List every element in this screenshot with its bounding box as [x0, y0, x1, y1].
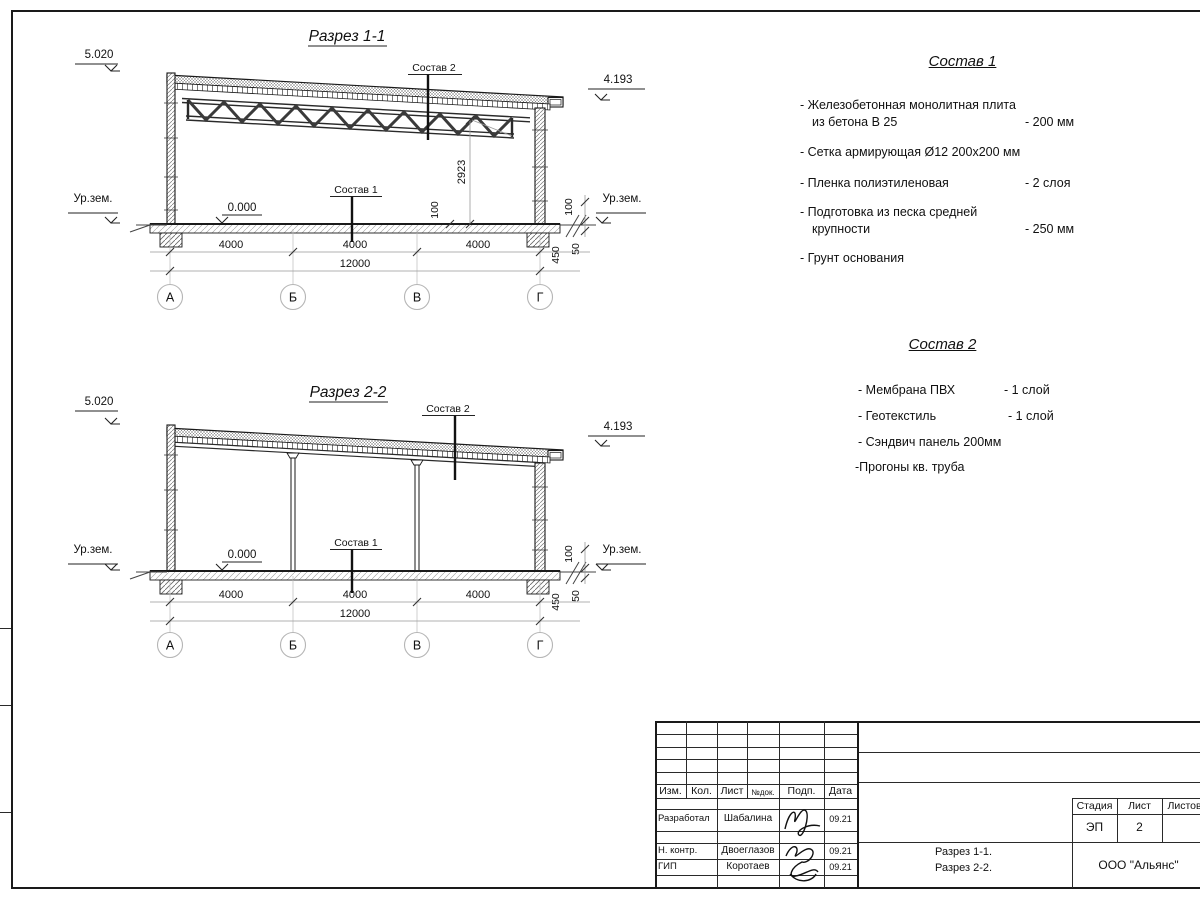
svg-text:100: 100 — [563, 198, 575, 216]
svg-text:Ур.зем.: Ур.зем. — [602, 544, 641, 556]
svg-text:4.193: 4.193 — [604, 421, 633, 433]
item-value: - 200 мм — [1025, 115, 1074, 129]
svg-text:2923: 2923 — [456, 160, 468, 184]
svg-text:Состав 1: Состав 1 — [334, 537, 378, 549]
sheet-number: 2 — [1117, 820, 1162, 834]
svg-text:Б: Б — [289, 291, 297, 305]
dim-row-total: 12000 — [150, 258, 580, 275]
elevation-mark-right: 4.193 — [588, 74, 645, 100]
list-item: - Подготовка из песка средней — [800, 205, 1100, 219]
svg-text:4000: 4000 — [343, 239, 367, 251]
drawing-sheet: { "section1": { "title": "Разрез 1-1", "… — [0, 0, 1200, 900]
item-text: из бетона В 25 — [812, 115, 897, 129]
axis-bubbles: А Б В Г — [158, 285, 553, 310]
header-data: Дата — [824, 785, 857, 797]
ground-level-left: Ур.зем. — [68, 544, 120, 570]
svg-text:Ур.зем.: Ур.зем. — [602, 193, 641, 205]
role-label: Н. контр. — [658, 845, 697, 856]
ground-level-left: Ур.зем. — [68, 193, 120, 223]
svg-text:А: А — [166, 291, 175, 305]
axis-bubbles: А Б В Г — [158, 633, 553, 658]
list-item: - Железобетонная монолитная плита — [800, 98, 1100, 112]
svg-text:50: 50 — [570, 590, 582, 602]
svg-text:Состав 2: Состав 2 — [426, 403, 470, 415]
list-item: - Сэндвич панель 200мм — [858, 435, 1128, 449]
svg-text:Ур.зем.: Ур.зем. — [73, 193, 112, 205]
svg-text:4000: 4000 — [466, 589, 490, 601]
item-text: - Геотекстиль — [858, 409, 936, 423]
section-2-2-drawing: 5.020 Ур.зем. 4.193 Ур.зем. 0.000 Состав… — [60, 375, 660, 675]
svg-text:Б: Б — [289, 639, 297, 653]
list-item: - Мембрана ПВХ - 1 слой — [858, 383, 1128, 397]
sign-date: 09.21 — [824, 862, 857, 872]
role-label: Разработал — [658, 813, 710, 824]
frame-bottom-border — [11, 887, 1200, 889]
svg-text:4000: 4000 — [466, 239, 490, 251]
svg-text:100: 100 — [563, 545, 575, 563]
list-item: - Сетка армирующая Ø12 200x200 мм — [800, 145, 1100, 159]
svg-text:Г: Г — [537, 291, 544, 305]
list-item: - Грунт основания — [800, 251, 1100, 265]
svg-text:5.020: 5.020 — [85, 49, 114, 61]
header-podp: Подп. — [779, 785, 824, 797]
sheets-label: Листов — [1162, 800, 1200, 812]
ground-level-right: Ур.зем. — [596, 193, 646, 223]
svg-text:12000: 12000 — [340, 258, 371, 270]
list-item: из бетона В 25 - 200 мм — [800, 115, 1100, 129]
section-2-2-title: Разрез 2-2 — [309, 384, 388, 402]
ground-level-right: Ур.зем. — [596, 544, 646, 570]
item-text: - Железобетонная монолитная плита — [800, 98, 1016, 112]
doc-title-line2: Разрез 2-2. — [935, 862, 992, 874]
svg-text:В: В — [413, 291, 421, 305]
signature — [780, 803, 824, 845]
header-list: Лист — [717, 785, 747, 797]
role-label: ГИП — [658, 861, 677, 872]
frame-left-tick — [0, 705, 11, 706]
svg-text:Состав 1: Состав 1 — [334, 184, 378, 196]
header-kol: Кол. — [686, 785, 717, 797]
svg-text:4000: 4000 — [219, 589, 243, 601]
dim-row-total: 12000 — [150, 608, 580, 625]
dim-row-spans: 4000 4000 4000 — [150, 229, 590, 284]
svg-text:100: 100 — [429, 201, 441, 219]
svg-text:0.000: 0.000 — [228, 202, 257, 214]
item-value: - 250 мм — [1025, 222, 1074, 236]
elevation-mark-top: 5.020 — [75, 396, 120, 424]
frame-left-tick — [0, 628, 11, 629]
zero-level-mark: 0.000 — [216, 549, 262, 570]
signer-name: Двоеглазов — [717, 845, 779, 856]
svg-text:Разрез 1-1: Разрез 1-1 — [309, 28, 386, 45]
elevation-mark-right: 4.193 — [588, 421, 645, 446]
stage-value: ЭП — [1072, 820, 1117, 834]
sheet-label: Лист — [1117, 800, 1162, 812]
dim-row-spans: 4000 4000 4000 — [150, 576, 590, 632]
item-text: - Подготовка из песка средней — [800, 205, 977, 219]
zero-level-mark: 0.000 — [216, 202, 262, 223]
list-item: крупности - 250 мм — [800, 222, 1100, 236]
company-name: ООО "Альянс" — [1072, 858, 1200, 872]
header-ndok: №док. — [747, 788, 779, 797]
item-text: - Сетка армирующая Ø12 200x200 мм — [800, 145, 1020, 159]
sign-date: 09.21 — [824, 846, 857, 856]
header-izm: Изм. — [655, 785, 686, 797]
svg-text:4000: 4000 — [343, 589, 367, 601]
svg-text:12000: 12000 — [340, 608, 371, 620]
frame-left-border — [11, 10, 13, 888]
item-value: - 1 слой — [1004, 383, 1050, 397]
elevation-mark-top: 5.020 — [75, 49, 120, 71]
svg-text:Ур.зем.: Ур.зем. — [73, 544, 112, 556]
item-text: - Грунт основания — [800, 251, 904, 265]
item-text: крупности — [812, 222, 870, 236]
leader-sostav1: Состав 1 — [330, 537, 382, 593]
sostav2-title: Состав 2 — [880, 336, 1005, 353]
list-item: -Прогоны кв. труба — [855, 460, 1125, 474]
svg-text:0.000: 0.000 — [228, 549, 257, 561]
signature — [780, 840, 824, 886]
svg-text:В: В — [413, 639, 421, 653]
item-value: - 2 слоя — [1025, 176, 1070, 190]
sostav1-title: Состав 1 — [900, 53, 1025, 70]
svg-text:450: 450 — [550, 246, 562, 264]
item-value: - 1 слой — [1008, 409, 1054, 423]
stage-label: Стадия — [1072, 800, 1117, 812]
item-text: - Сэндвич панель 200мм — [858, 435, 1001, 449]
frame-top-border — [11, 10, 1200, 12]
svg-text:А: А — [166, 639, 175, 653]
svg-text:4000: 4000 — [219, 239, 243, 251]
svg-text:Разрез 2-2: Разрез 2-2 — [310, 384, 387, 401]
signer-name: Коротаев — [717, 861, 779, 872]
svg-text:Г: Г — [537, 639, 544, 653]
item-text: - Мембрана ПВХ — [858, 383, 955, 397]
sign-date: 09.21 — [824, 814, 857, 824]
section-1-1-title: Разрез 1-1 — [308, 28, 387, 46]
item-text: - Пленка полиэтиленовая — [800, 176, 949, 190]
frame-left-tick — [0, 812, 11, 813]
list-item: - Пленка полиэтиленовая - 2 слоя — [800, 176, 1100, 190]
list-item: - Геотекстиль - 1 слой — [858, 409, 1128, 423]
signer-name: Шабалина — [717, 813, 779, 824]
svg-text:5.020: 5.020 — [85, 396, 114, 408]
doc-title-line1: Разрез 1-1. — [935, 846, 992, 858]
svg-text:Состав 2: Состав 2 — [412, 62, 456, 74]
leader-sostav2: Состав 2 — [422, 403, 475, 480]
svg-text:4.193: 4.193 — [604, 74, 633, 86]
section-1-1-drawing: 5.020 Ур.зем. 4.193 Ур.зем. 0.000 Состав… — [60, 25, 660, 330]
svg-text:50: 50 — [570, 243, 582, 255]
item-text: -Прогоны кв. труба — [855, 460, 964, 474]
